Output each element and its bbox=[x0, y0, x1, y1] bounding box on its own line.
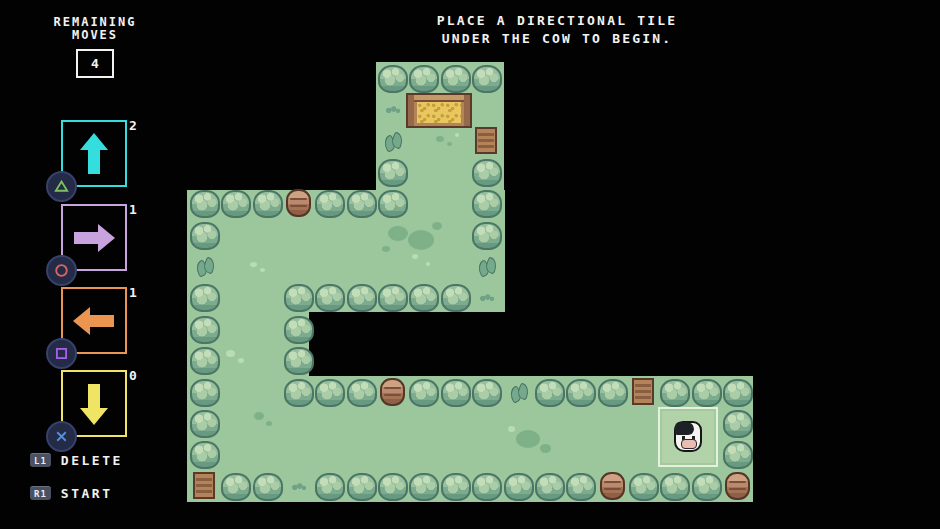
bush-tile bbox=[598, 379, 628, 407]
remaining-moves-label: REMAINING MOVES bbox=[30, 16, 160, 42]
instruction-text: PLACE A DIRECTIONAL TILE UNDER THE COW T… bbox=[377, 12, 737, 48]
bush-tile bbox=[535, 379, 565, 407]
bush-tile bbox=[472, 222, 502, 250]
bush-tile bbox=[378, 190, 408, 218]
bush-tile bbox=[723, 441, 753, 469]
bush-tile bbox=[190, 222, 220, 250]
start-button[interactable]: R1 START bbox=[30, 483, 112, 503]
instruction-line2: UNDER THE COW TO BEGIN. bbox=[377, 30, 737, 48]
bush-tile bbox=[472, 473, 502, 501]
remaining-moves-value: 4 bbox=[91, 56, 99, 71]
bush-tile bbox=[253, 473, 283, 501]
bush-tile bbox=[378, 65, 408, 93]
grass-decoration bbox=[516, 430, 540, 448]
grass-decoration bbox=[260, 268, 265, 272]
grass-decoration bbox=[447, 142, 452, 146]
tile-button-right[interactable]: 1 bbox=[61, 204, 127, 271]
hay-feeder bbox=[408, 95, 470, 126]
bush-tile bbox=[472, 190, 502, 218]
bush-tile bbox=[723, 410, 753, 438]
bush-tile bbox=[190, 316, 220, 344]
tile-button-up[interactable]: 2 bbox=[61, 120, 127, 187]
fern-plant bbox=[196, 258, 214, 276]
grass-decoration bbox=[426, 262, 430, 266]
bush-tile bbox=[566, 379, 596, 407]
delete-label: DELETE bbox=[61, 453, 123, 468]
instruction-line1: PLACE A DIRECTIONAL TILE bbox=[377, 12, 737, 30]
bush-tile bbox=[441, 379, 471, 407]
delete-button[interactable]: L1 DELETE bbox=[30, 450, 123, 470]
ps-square-icon bbox=[46, 338, 77, 369]
bush-tile bbox=[284, 316, 314, 344]
crate bbox=[632, 378, 654, 405]
r1-key-badge: R1 bbox=[30, 486, 51, 500]
bush-tile bbox=[566, 473, 596, 501]
bush-tile bbox=[190, 441, 220, 469]
bush-tile bbox=[629, 473, 659, 501]
bush-tile bbox=[190, 190, 220, 218]
cow-eye bbox=[682, 436, 685, 440]
crate bbox=[475, 127, 497, 154]
bush-tile bbox=[221, 190, 251, 218]
grass-decoration bbox=[436, 136, 444, 142]
bush-tile bbox=[660, 473, 690, 501]
cow bbox=[674, 421, 702, 452]
grass-tuft bbox=[386, 105, 400, 114]
bush-tile bbox=[347, 473, 377, 501]
bush-tile bbox=[441, 473, 471, 501]
grass-decoration bbox=[382, 246, 390, 252]
bush-tile bbox=[315, 284, 345, 312]
grass-decoration bbox=[388, 226, 408, 241]
fern-plant bbox=[478, 258, 496, 276]
cow-eye bbox=[692, 436, 695, 440]
bush-tile bbox=[190, 284, 220, 312]
bush-tile bbox=[409, 379, 439, 407]
bush-tile bbox=[723, 379, 753, 407]
bush-tile bbox=[472, 65, 502, 93]
grass-decoration bbox=[455, 133, 459, 137]
tile-button-down[interactable]: 0 bbox=[61, 370, 127, 437]
bush-tile bbox=[347, 190, 377, 218]
fern-plant bbox=[510, 384, 528, 402]
barrel bbox=[380, 378, 405, 406]
grass-decoration bbox=[254, 412, 264, 420]
up-arrow-icon bbox=[74, 133, 114, 175]
bush-tile bbox=[692, 473, 722, 501]
bush-tile bbox=[692, 379, 722, 407]
start-label: START bbox=[61, 486, 113, 501]
bush-tile bbox=[347, 379, 377, 407]
tile-count-left: 1 bbox=[129, 285, 137, 300]
bush-tile bbox=[409, 284, 439, 312]
bush-tile bbox=[660, 379, 690, 407]
down-arrow-icon bbox=[74, 383, 114, 425]
grass-tuft bbox=[480, 293, 494, 302]
game-screen: REMAINING MOVES 4 2 1 1 0 L bbox=[0, 0, 940, 529]
fern-plant bbox=[384, 133, 402, 151]
bush-tile bbox=[535, 473, 565, 501]
bush-tile bbox=[284, 379, 314, 407]
grass-decoration bbox=[432, 222, 442, 230]
grass-decoration bbox=[540, 444, 551, 453]
grass-decoration bbox=[226, 350, 235, 357]
bush-tile bbox=[284, 284, 314, 312]
right-arrow-icon bbox=[73, 218, 115, 258]
bush-tile bbox=[284, 347, 314, 375]
grass-decoration bbox=[238, 358, 244, 363]
bush-tile bbox=[378, 473, 408, 501]
ps-cross-icon bbox=[46, 421, 77, 452]
bush-tile bbox=[378, 284, 408, 312]
grass-decoration bbox=[508, 426, 515, 432]
crate bbox=[193, 472, 215, 499]
bush-tile bbox=[409, 473, 439, 501]
remaining-moves-panel: REMAINING MOVES 4 bbox=[30, 16, 160, 78]
bush-tile bbox=[315, 190, 345, 218]
tile-count-down: 0 bbox=[129, 368, 137, 383]
barrel bbox=[286, 189, 311, 217]
grass-decoration bbox=[250, 262, 257, 267]
bush-tile bbox=[472, 379, 502, 407]
grass-decoration bbox=[408, 230, 434, 250]
ps-circle-icon bbox=[46, 255, 77, 286]
bush-tile bbox=[441, 284, 471, 312]
bush-tile bbox=[253, 190, 283, 218]
bush-tile bbox=[441, 65, 471, 93]
barrel bbox=[725, 472, 750, 500]
remaining-moves-label-line2: MOVES bbox=[30, 29, 160, 42]
bush-tile bbox=[190, 410, 220, 438]
game-map bbox=[0, 0, 940, 529]
tile-count-up: 2 bbox=[129, 118, 137, 133]
remaining-moves-counter: 4 bbox=[76, 49, 114, 78]
bush-tile bbox=[378, 159, 408, 187]
l1-key-badge: L1 bbox=[30, 453, 51, 467]
grass-decoration bbox=[266, 421, 272, 426]
bush-tile bbox=[190, 379, 220, 407]
bush-tile bbox=[315, 473, 345, 501]
left-arrow-icon bbox=[73, 301, 115, 341]
bush-tile bbox=[472, 159, 502, 187]
barrel bbox=[600, 472, 625, 500]
bush-tile bbox=[221, 473, 251, 501]
ps-triangle-icon bbox=[46, 171, 77, 202]
tile-count-right: 1 bbox=[129, 202, 137, 217]
bush-tile bbox=[347, 284, 377, 312]
grass-tuft bbox=[292, 482, 306, 491]
grass-decoration bbox=[412, 254, 418, 259]
bush-tile bbox=[190, 347, 220, 375]
bush-tile bbox=[315, 379, 345, 407]
bush-tile bbox=[409, 65, 439, 93]
tile-button-left[interactable]: 1 bbox=[61, 287, 127, 354]
bush-tile bbox=[504, 473, 534, 501]
